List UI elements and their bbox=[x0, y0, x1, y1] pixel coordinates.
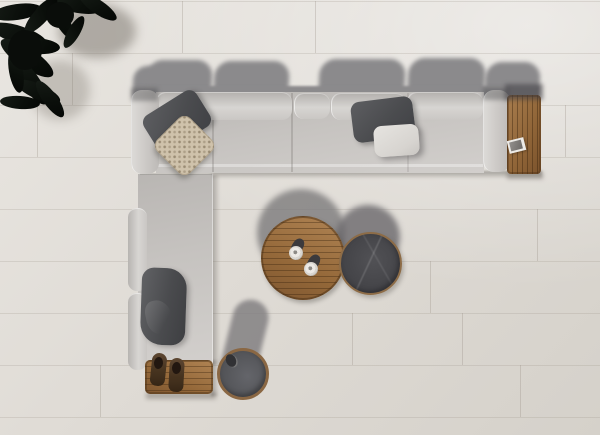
sofa-armrest-right bbox=[483, 90, 510, 172]
espresso-cup bbox=[304, 262, 318, 276]
tile-grout-line bbox=[430, 261, 431, 313]
tile-grout-line bbox=[315, 1, 316, 53]
plant-core bbox=[8, 30, 42, 70]
sofa-backrest-cushion-2 bbox=[294, 93, 330, 119]
tile-grout-line bbox=[565, 105, 566, 157]
shadow-overlay-armrest-left bbox=[131, 88, 158, 101]
espresso-cup bbox=[289, 246, 303, 260]
tile-grout-line bbox=[520, 365, 521, 417]
photo-outdoor-lounge-top-view bbox=[0, 0, 600, 435]
tile-grout-line bbox=[462, 313, 463, 365]
round-dark-side-table bbox=[339, 232, 402, 295]
plant-core bbox=[46, 2, 74, 28]
tile-grout-line bbox=[182, 1, 183, 53]
tile-grout-line bbox=[37, 105, 38, 157]
tile-grout-line bbox=[537, 209, 538, 261]
tile-grout-line bbox=[352, 313, 353, 365]
mid-pillow-white bbox=[373, 123, 420, 157]
teak-end-table bbox=[507, 95, 541, 174]
sofa-seat-front-highlight bbox=[157, 164, 483, 167]
tile-grout-line bbox=[100, 365, 101, 417]
sofa-backrest-cushion-4 bbox=[407, 92, 483, 120]
shadow-overlay-end-table bbox=[505, 84, 543, 100]
round-teak-coffee-table bbox=[261, 216, 345, 300]
round-stool bbox=[217, 348, 269, 400]
